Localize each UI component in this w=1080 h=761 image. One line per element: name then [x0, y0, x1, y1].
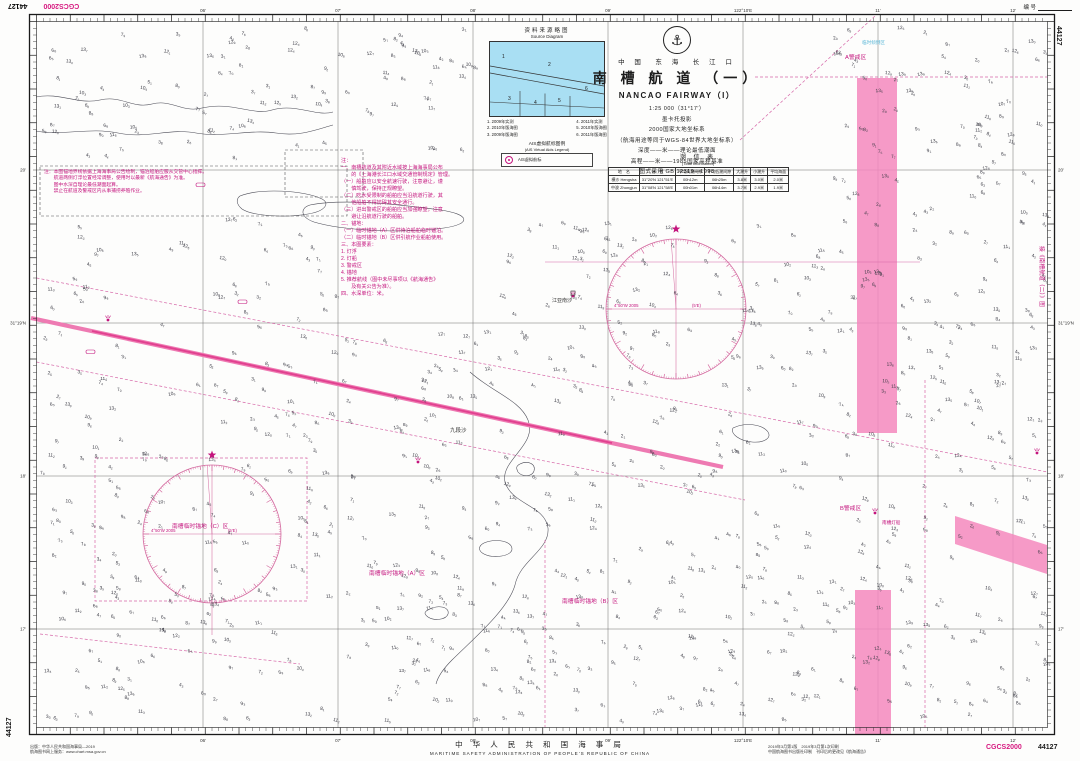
svg-text:126: 126: [595, 503, 603, 509]
svg-text:20: 20: [629, 458, 634, 464]
svg-text:24: 24: [935, 454, 940, 460]
svg-text:124: 124: [803, 544, 811, 551]
svg-text:17′: 17′: [20, 627, 26, 632]
svg-text:68: 68: [421, 385, 427, 392]
tide-cell: 中浚 Zhongjun: [609, 184, 640, 192]
chart-datum-note: （航海用途等同于WGS-84世界大地坐标系）: [558, 136, 796, 144]
svg-text:104: 104: [315, 101, 323, 108]
svg-text:136: 136: [978, 629, 987, 637]
svg-text:81: 81: [56, 75, 62, 82]
svg-text:109: 109: [84, 414, 92, 421]
svg-text:112: 112: [326, 593, 334, 600]
svg-text:40: 40: [619, 718, 624, 724]
svg-text:79: 79: [308, 438, 313, 444]
svg-text:66: 66: [144, 508, 150, 515]
svg-text:79: 79: [241, 466, 246, 472]
svg-text:100: 100: [423, 463, 431, 470]
tide-col-header: 地 名: [609, 168, 640, 176]
svg-text:98: 98: [1039, 623, 1044, 629]
svg-text:131: 131: [721, 382, 729, 388]
svg-text:56: 56: [843, 218, 848, 224]
svg-text:45: 45: [731, 336, 736, 342]
svg-text:60: 60: [790, 691, 796, 698]
svg-text:63: 63: [53, 715, 59, 722]
svg-text:26: 26: [998, 617, 1003, 623]
text-line: 5. 推荐航线（图中未尽事项以《航海通告》: [341, 277, 493, 284]
svg-text:71: 71: [316, 256, 322, 263]
svg-text:104: 104: [140, 85, 148, 92]
svg-text:57: 57: [800, 624, 806, 631]
svg-text:96: 96: [87, 422, 92, 429]
svg-text:39: 39: [365, 642, 370, 648]
svg-text:24: 24: [346, 398, 351, 404]
svg-text:97: 97: [54, 438, 60, 445]
svg-text:82: 82: [937, 697, 942, 703]
svg-text:59: 59: [223, 389, 229, 396]
svg-text:76: 76: [988, 78, 994, 85]
svg-text:134: 134: [65, 58, 73, 65]
svg-text:73: 73: [1026, 477, 1032, 484]
svg-text:80: 80: [56, 518, 61, 524]
svg-text:92: 92: [492, 581, 497, 587]
map-label: B警戒区: [840, 504, 861, 512]
svg-text:53: 53: [174, 592, 180, 599]
svg-text:76: 76: [626, 353, 632, 360]
svg-text:121: 121: [484, 366, 492, 373]
svg-text:72: 72: [586, 274, 591, 280]
svg-text:55: 55: [77, 224, 82, 230]
svg-text:129: 129: [885, 70, 893, 77]
svg-text:91: 91: [926, 148, 931, 155]
svg-text:121: 121: [421, 378, 430, 385]
svg-text:71: 71: [1020, 518, 1025, 525]
svg-text:134: 134: [515, 689, 523, 695]
svg-text:115: 115: [772, 522, 780, 530]
svg-text:108: 108: [431, 570, 439, 576]
svg-text:112: 112: [740, 583, 748, 590]
svg-text:121: 121: [874, 645, 882, 652]
svg-text:44: 44: [99, 85, 105, 92]
svg-text:38: 38: [527, 227, 533, 234]
svg-text:70: 70: [228, 70, 234, 77]
text-line: 3. 警戒区: [341, 263, 493, 270]
svg-text:52: 52: [291, 410, 296, 416]
svg-text:65: 65: [73, 291, 78, 298]
svg-text:136: 136: [656, 708, 664, 715]
text-line: （三）进出警戒区的船舶应当加强瞭望，注意: [341, 207, 493, 214]
svg-text:79: 79: [74, 713, 79, 719]
svg-text:20′: 20′: [1058, 168, 1064, 173]
svg-text:24: 24: [740, 701, 745, 707]
svg-text:74: 74: [285, 412, 290, 418]
svg-text:110: 110: [969, 193, 976, 199]
svg-text:111: 111: [963, 83, 971, 90]
svg-text:111: 111: [552, 244, 559, 250]
svg-text:33: 33: [46, 714, 51, 720]
svg-text:20′: 20′: [20, 168, 26, 173]
svg-text:64: 64: [218, 70, 223, 76]
svg-text:51: 51: [147, 79, 152, 85]
svg-text:37: 37: [746, 386, 752, 393]
svg-text:62: 62: [207, 611, 212, 617]
map-label: 南槽临时锚地（A）区: [369, 569, 425, 577]
svg-text:26: 26: [727, 411, 733, 418]
svg-text:72: 72: [257, 221, 263, 228]
svg-text:46: 46: [489, 381, 494, 387]
svg-text:139: 139: [905, 619, 913, 626]
svg-text:100: 100: [1020, 209, 1028, 215]
light-icon: [106, 315, 111, 321]
svg-text:82: 82: [51, 552, 57, 559]
svg-text:126: 126: [1011, 48, 1019, 55]
svg-text:69: 69: [731, 238, 736, 244]
svg-text:110: 110: [135, 578, 142, 584]
svg-text:27: 27: [930, 416, 936, 423]
svg-text:80: 80: [1001, 151, 1007, 158]
svg-text:51: 51: [344, 337, 350, 344]
svg-text:44: 44: [500, 614, 506, 621]
svg-text:25: 25: [47, 370, 53, 377]
svg-text:49: 49: [169, 247, 174, 253]
tide-col-header: 位 置: [639, 168, 675, 176]
svg-text:132: 132: [544, 491, 552, 498]
svg-text:58: 58: [969, 388, 975, 395]
svg-text:87: 87: [185, 620, 190, 626]
svg-text:103: 103: [65, 498, 73, 504]
svg-text:115: 115: [204, 539, 212, 546]
svg-text:44: 44: [1042, 221, 1048, 228]
svg-text:48: 48: [495, 474, 500, 480]
svg-text:137: 137: [805, 350, 813, 357]
svg-text:89: 89: [998, 430, 1003, 437]
svg-text:25: 25: [75, 668, 80, 674]
svg-text:43: 43: [912, 211, 917, 217]
svg-text:44: 44: [628, 380, 633, 386]
svg-text:127: 127: [1030, 591, 1038, 597]
svg-text:63: 63: [246, 715, 251, 722]
svg-text:57: 57: [754, 281, 760, 288]
svg-text:127: 127: [347, 515, 355, 522]
svg-text:124: 124: [589, 525, 597, 532]
svg-text:59: 59: [278, 669, 284, 676]
svg-text:54: 54: [110, 574, 116, 581]
svg-text:42: 42: [1031, 253, 1037, 260]
svg-text:36: 36: [575, 622, 581, 629]
svg-text:83: 83: [452, 612, 457, 618]
svg-text:111: 111: [1003, 244, 1010, 250]
svg-text:124: 124: [287, 47, 295, 53]
svg-text:47: 47: [937, 408, 943, 415]
svg-text:51: 51: [953, 699, 959, 706]
svg-text:50: 50: [264, 477, 270, 484]
svg-text:85: 85: [323, 307, 329, 314]
svg-text:78: 78: [735, 533, 740, 540]
svg-text:112: 112: [259, 100, 266, 107]
svg-text:26: 26: [943, 502, 949, 509]
svg-text:124: 124: [944, 70, 952, 77]
svg-text:126: 126: [665, 225, 673, 231]
svg-text:47: 47: [292, 422, 298, 429]
svg-text:31: 31: [461, 26, 467, 33]
svg-text:101: 101: [287, 399, 295, 405]
chart-projection: 墨卡托投影: [558, 115, 796, 123]
svg-text:136: 136: [468, 601, 476, 607]
svg-text:68: 68: [51, 47, 57, 54]
svg-text:20: 20: [112, 551, 117, 557]
svg-text:114: 114: [383, 70, 390, 76]
svg-text:66: 66: [150, 653, 155, 659]
svg-text:21: 21: [329, 522, 335, 529]
svg-text:88: 88: [714, 272, 719, 279]
svg-text:69: 69: [602, 249, 607, 256]
svg-text:51: 51: [1032, 433, 1037, 439]
svg-text:136: 136: [200, 619, 208, 626]
svg-text:90: 90: [117, 632, 122, 638]
svg-text:21: 21: [621, 433, 626, 439]
svg-text:42: 42: [108, 464, 113, 470]
svg-text:21: 21: [923, 30, 929, 37]
svg-text:110: 110: [1035, 121, 1043, 128]
svg-text:90: 90: [82, 581, 87, 587]
svg-text:59: 59: [945, 353, 950, 360]
svg-text:58: 58: [783, 617, 788, 624]
svg-text:122°10′E: 122°10′E: [734, 8, 752, 13]
svg-text:74: 74: [229, 125, 234, 131]
text-line: 注：: [341, 158, 493, 165]
svg-text:58: 58: [611, 462, 616, 469]
footer-chart-number: 44127: [1038, 744, 1057, 751]
serial-label: 编 号: [1023, 3, 1036, 11]
svg-text:70: 70: [117, 387, 122, 393]
svg-text:54: 54: [439, 595, 444, 601]
svg-text:27: 27: [424, 514, 430, 521]
svg-text:27: 27: [967, 712, 972, 718]
svg-text:64: 64: [983, 698, 988, 704]
svg-text:103: 103: [517, 710, 525, 717]
svg-text:26: 26: [553, 671, 558, 677]
svg-text:58: 58: [923, 527, 929, 534]
text-line: 禁止在航道及警戒区内从事捕捞养殖作业。: [44, 189, 342, 195]
svg-text:28: 28: [895, 400, 901, 407]
svg-text:89: 89: [403, 422, 408, 428]
svg-text:38: 38: [735, 449, 740, 455]
svg-text:63: 63: [441, 442, 447, 449]
tide-table-grid: 地 名位 置平均高潮间隙平均低潮间隙大潮升小潮升平均海面横沙 Hengsha31…: [608, 167, 789, 192]
svg-text:66: 66: [110, 614, 115, 620]
svg-text:34: 34: [452, 367, 458, 374]
svg-text:23: 23: [856, 517, 862, 524]
svg-text:79: 79: [792, 483, 798, 490]
svg-text:27: 27: [203, 92, 208, 98]
svg-text:108: 108: [213, 291, 221, 297]
svg-text:130: 130: [993, 307, 1001, 313]
tide-cell: 1.9米: [768, 184, 789, 192]
svg-text:28: 28: [632, 236, 638, 243]
svg-text:81: 81: [907, 336, 912, 342]
svg-text:80: 80: [449, 58, 455, 65]
footer-left-line2: 航海图书网上服务：www.chart.msa.gov.cn: [30, 749, 106, 754]
publisher-name-cn: 中 华 人 民 共 和 国 海 事 局: [0, 739, 1080, 750]
svg-text:11′: 11′: [875, 8, 881, 13]
svg-text:111: 111: [254, 619, 262, 627]
svg-text:71: 71: [58, 331, 63, 338]
chart-region: 中 国 东 海 长 江 口: [558, 56, 796, 66]
svg-text:32: 32: [234, 290, 240, 297]
svg-text:62: 62: [523, 639, 529, 646]
text-line: 2. 2010年版海图: [487, 125, 518, 131]
svg-text:41: 41: [531, 382, 537, 389]
svg-text:136: 136: [930, 138, 938, 145]
svg-text:93: 93: [240, 700, 246, 707]
svg-text:62: 62: [460, 147, 465, 153]
svg-text:82: 82: [846, 411, 852, 418]
svg-text:62: 62: [944, 624, 949, 630]
map-label: 南槽灯船: [882, 519, 901, 526]
svg-text:80: 80: [485, 647, 490, 653]
svg-text:88: 88: [223, 716, 228, 722]
svg-text:43: 43: [899, 587, 904, 593]
svg-text:39: 39: [176, 32, 181, 38]
svg-text:37: 37: [251, 89, 256, 95]
svg-text:43: 43: [909, 296, 915, 303]
svg-text:96: 96: [902, 664, 907, 671]
svg-text:20: 20: [792, 382, 798, 389]
svg-text:92: 92: [495, 500, 500, 506]
svg-text:98: 98: [949, 554, 955, 561]
buoy-icon: [86, 350, 95, 354]
svg-text:06′: 06′: [200, 8, 206, 13]
svg-text:74: 74: [533, 507, 538, 513]
light-icon: [873, 508, 878, 514]
svg-text:61: 61: [565, 663, 571, 670]
svg-text:62: 62: [530, 666, 536, 673]
svg-text:131: 131: [616, 242, 624, 249]
tide-cell: 31°08′N 121°58′E: [639, 184, 675, 192]
svg-text:117: 117: [458, 349, 466, 356]
svg-text:115: 115: [384, 717, 392, 724]
svg-text:136: 136: [300, 333, 308, 340]
svg-text:64: 64: [263, 247, 269, 254]
svg-text:132: 132: [923, 298, 931, 305]
svg-text:103: 103: [985, 585, 993, 592]
svg-text:87: 87: [310, 84, 315, 90]
svg-text:128: 128: [1007, 131, 1015, 138]
svg-text:45: 45: [839, 249, 844, 255]
text-line: （二）吃水受限制的船舶应当沿航道行驶，其: [341, 193, 493, 200]
svg-text:123: 123: [891, 526, 899, 532]
svg-text:139: 139: [64, 401, 72, 408]
svg-text:109: 109: [975, 122, 983, 129]
svg-text:117: 117: [974, 612, 982, 619]
svg-text:69: 69: [846, 27, 852, 34]
svg-text:85: 85: [756, 552, 761, 558]
svg-text:87: 87: [334, 294, 339, 300]
svg-text:27: 27: [1001, 380, 1006, 387]
svg-text:60: 60: [532, 474, 537, 481]
svg-text:91: 91: [402, 453, 408, 460]
svg-text:75: 75: [670, 242, 676, 249]
text-line: 慎驾驶，保持正规瞭望。: [341, 186, 493, 193]
svg-text:35: 35: [77, 369, 82, 375]
svg-text:134: 134: [246, 118, 255, 126]
svg-text:77: 77: [74, 95, 80, 102]
svg-text:45: 45: [512, 311, 517, 317]
svg-text:35: 35: [497, 355, 502, 361]
corner-chart-id-top-left: CGCS2000 44127: [8, 2, 79, 9]
svg-text:20: 20: [893, 106, 899, 113]
svg-text:87: 87: [214, 383, 219, 389]
svg-text:101: 101: [567, 344, 576, 352]
svg-text:35: 35: [822, 348, 827, 354]
svg-text:125: 125: [930, 374, 938, 381]
text-line: 二、锚地：: [341, 221, 493, 228]
svg-text:12′: 12′: [1010, 8, 1016, 13]
svg-text:59: 59: [892, 532, 897, 538]
svg-text:126: 126: [521, 594, 529, 601]
svg-text:74: 74: [509, 627, 515, 634]
svg-text:99: 99: [833, 176, 838, 182]
svg-text:22: 22: [929, 206, 934, 213]
svg-text:137: 137: [908, 365, 916, 371]
svg-text:56: 56: [756, 541, 762, 548]
svg-text:68: 68: [981, 190, 986, 196]
svg-text:77: 77: [195, 106, 200, 112]
svg-text:66: 66: [103, 122, 109, 129]
fairway-channel: [31, 318, 723, 467]
svg-text:88: 88: [774, 599, 780, 606]
svg-text:71: 71: [50, 520, 55, 526]
svg-text:26: 26: [187, 139, 192, 145]
svg-text:25: 25: [229, 622, 234, 628]
svg-text:87: 87: [192, 506, 198, 513]
svg-text:139: 139: [1042, 212, 1050, 219]
svg-text:96: 96: [231, 350, 237, 357]
svg-text:99: 99: [902, 325, 908, 332]
svg-text:116: 116: [306, 486, 314, 493]
svg-text:121: 121: [813, 693, 821, 700]
svg-text:93: 93: [914, 126, 920, 133]
svg-text:83: 83: [391, 53, 396, 60]
svg-text:22: 22: [1037, 417, 1043, 424]
svg-text:135: 135: [311, 531, 319, 538]
svg-text:118: 118: [652, 328, 660, 335]
svg-text:60: 60: [964, 230, 969, 236]
svg-text:23: 23: [912, 227, 918, 234]
svg-text:51: 51: [376, 605, 381, 611]
svg-text:72: 72: [296, 316, 302, 323]
svg-text:29: 29: [844, 123, 849, 129]
svg-text:39: 39: [91, 523, 96, 529]
svg-text:129: 129: [861, 495, 870, 503]
svg-text:32: 32: [256, 295, 261, 301]
svg-text:47: 47: [538, 222, 544, 229]
svg-text:112: 112: [100, 683, 108, 690]
svg-text:99: 99: [103, 295, 109, 302]
svg-text:139: 139: [917, 70, 926, 78]
tide-cell: 06h25m: [705, 176, 734, 184]
svg-text:134: 134: [208, 457, 216, 463]
svg-text:58: 58: [548, 506, 554, 513]
svg-text:31°19′N: 31°19′N: [1058, 321, 1074, 326]
svg-text:58: 58: [116, 585, 121, 591]
svg-text:78: 78: [828, 309, 833, 315]
svg-text:68: 68: [232, 282, 238, 289]
svg-text:40: 40: [886, 539, 891, 545]
svg-text:32: 32: [932, 240, 937, 247]
svg-text:79: 79: [1031, 533, 1036, 540]
svg-text:105: 105: [298, 515, 306, 521]
svg-text:70: 70: [788, 310, 793, 317]
